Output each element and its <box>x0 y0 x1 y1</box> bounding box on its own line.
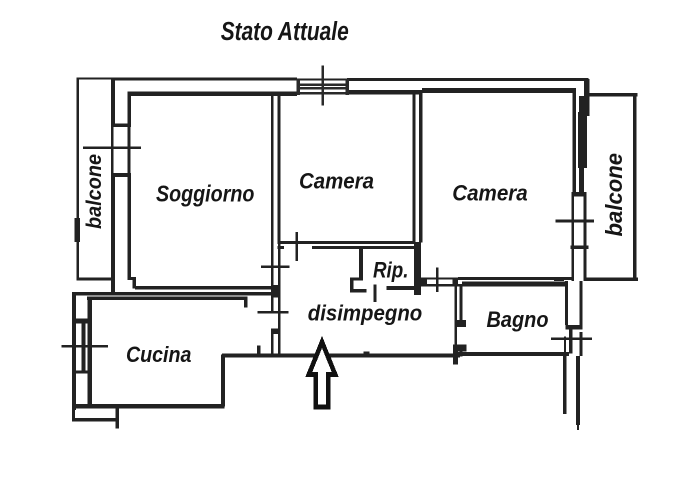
svg-text:Bagno: Bagno <box>487 307 549 332</box>
svg-text:balcone: balcone <box>601 153 627 237</box>
svg-text:Stato Attuale: Stato Attuale <box>221 18 349 46</box>
svg-text:balcone: balcone <box>82 154 106 229</box>
svg-text:Camera: Camera <box>299 168 374 193</box>
svg-text:Camera: Camera <box>452 181 528 206</box>
svg-text:Soggiorno: Soggiorno <box>156 181 255 207</box>
svg-text:Rip.: Rip. <box>373 258 409 283</box>
svg-text:disimpegno: disimpegno <box>308 301 423 326</box>
svg-text:Cucina: Cucina <box>126 342 192 367</box>
